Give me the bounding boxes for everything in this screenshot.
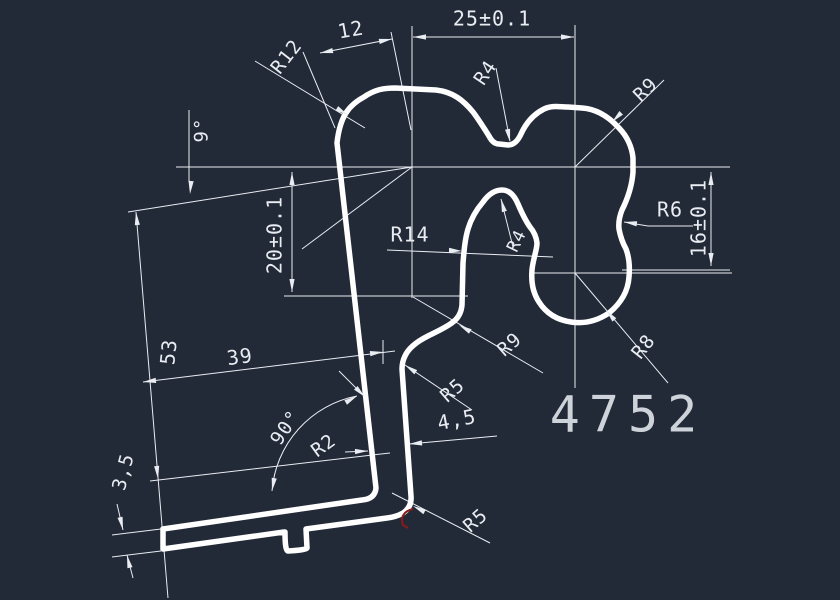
radius-r4-top-arrowhead: [505, 129, 510, 142]
dim-45-line-b: [409, 436, 497, 444]
cad-canvas[interactable]: 25±0.1 12 R12 R4 R9 9° 20±0.1 R14 R4 R6 …: [0, 0, 840, 600]
radius-r5-mid-label: R5: [436, 374, 469, 407]
dim-35-ext-b: [112, 551, 161, 557]
angle-9-label: 9°: [191, 118, 213, 143]
profile-outline[interactable]: [163, 88, 633, 551]
radius-r4-inner-arrowhead: [501, 199, 507, 212]
radius-r4-top-label: R4: [470, 56, 502, 89]
radius-r4-inner-label: R4: [503, 227, 531, 256]
dim-12-label: 12: [336, 15, 366, 43]
dim-12-ext-right: [391, 32, 411, 130]
dim-39-line: [143, 351, 395, 382]
dim-12-ext-left: [303, 52, 335, 128]
dim-39-label: 39: [225, 343, 254, 370]
dim-53-arrowhead: [135, 212, 140, 225]
dim-35-label: 3,5: [108, 451, 139, 493]
radius-r9-lower-arrowhead: [459, 325, 472, 334]
dim-39-arrowhead: [370, 351, 383, 356]
dim-20-arrowhead: [289, 279, 294, 292]
dim-53-label: 53: [155, 338, 182, 366]
radius-r9-top-label: R9: [629, 73, 662, 106]
dim-25-arrowhead: [413, 34, 426, 39]
dim-45-label: 4,5: [435, 404, 478, 435]
dim-12-arrowhead: [320, 48, 333, 53]
arrowheads-layer: [118, 34, 714, 568]
dim-20-arrowhead: [289, 172, 294, 185]
radius-r5-bottom-label: R5: [459, 504, 492, 537]
radius-r8-leader: [575, 273, 668, 383]
angle-9-arrowhead: [189, 181, 194, 194]
dim-35-arrowhead: [127, 555, 133, 568]
dim-35-ext-a: [112, 529, 161, 535]
dim-20-label: 20±0.1: [263, 196, 287, 274]
radius-r9-top-arrowhead: [612, 111, 623, 122]
cad-viewport[interactable]: 25±0.1 12 R12 R4 R9 9° 20±0.1 R14 R4 R6 …: [0, 0, 840, 600]
dim-45-arrowhead: [409, 440, 422, 445]
radius-r14-arrowhead: [449, 248, 462, 253]
dim-35-arrowhead: [118, 517, 124, 530]
radius-r9-lower-label: R9: [493, 328, 526, 361]
radius-r5-mid-arrowhead: [405, 365, 417, 374]
radius-r8-label: R8: [627, 330, 660, 363]
radius-r14-label: R14: [390, 223, 429, 247]
dim-16-label: 16±0.1: [687, 179, 711, 257]
radius-r2-label: R2: [307, 429, 340, 461]
dim-25-arrowhead: [561, 34, 574, 39]
radius-r12-leader: [255, 61, 365, 128]
dim-25-label: 25±0.1: [453, 7, 531, 31]
radius-r6-arrowhead: [624, 221, 637, 226]
dim-53-ext-bottom: [150, 453, 390, 481]
angle-90-arrowhead: [272, 478, 277, 491]
radius-r6-label: R6: [657, 198, 683, 222]
part-number: 4752: [550, 386, 706, 444]
dim-12-arrowhead: [379, 39, 392, 44]
